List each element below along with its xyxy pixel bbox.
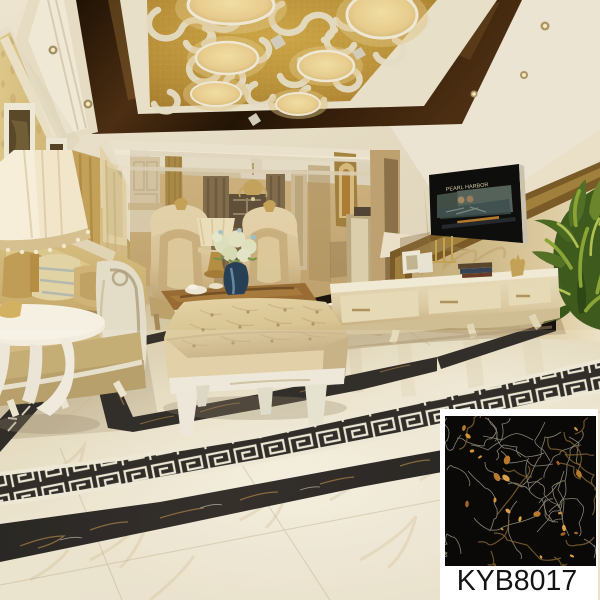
svg-text:KYB8017: KYB8017: [457, 565, 577, 597]
